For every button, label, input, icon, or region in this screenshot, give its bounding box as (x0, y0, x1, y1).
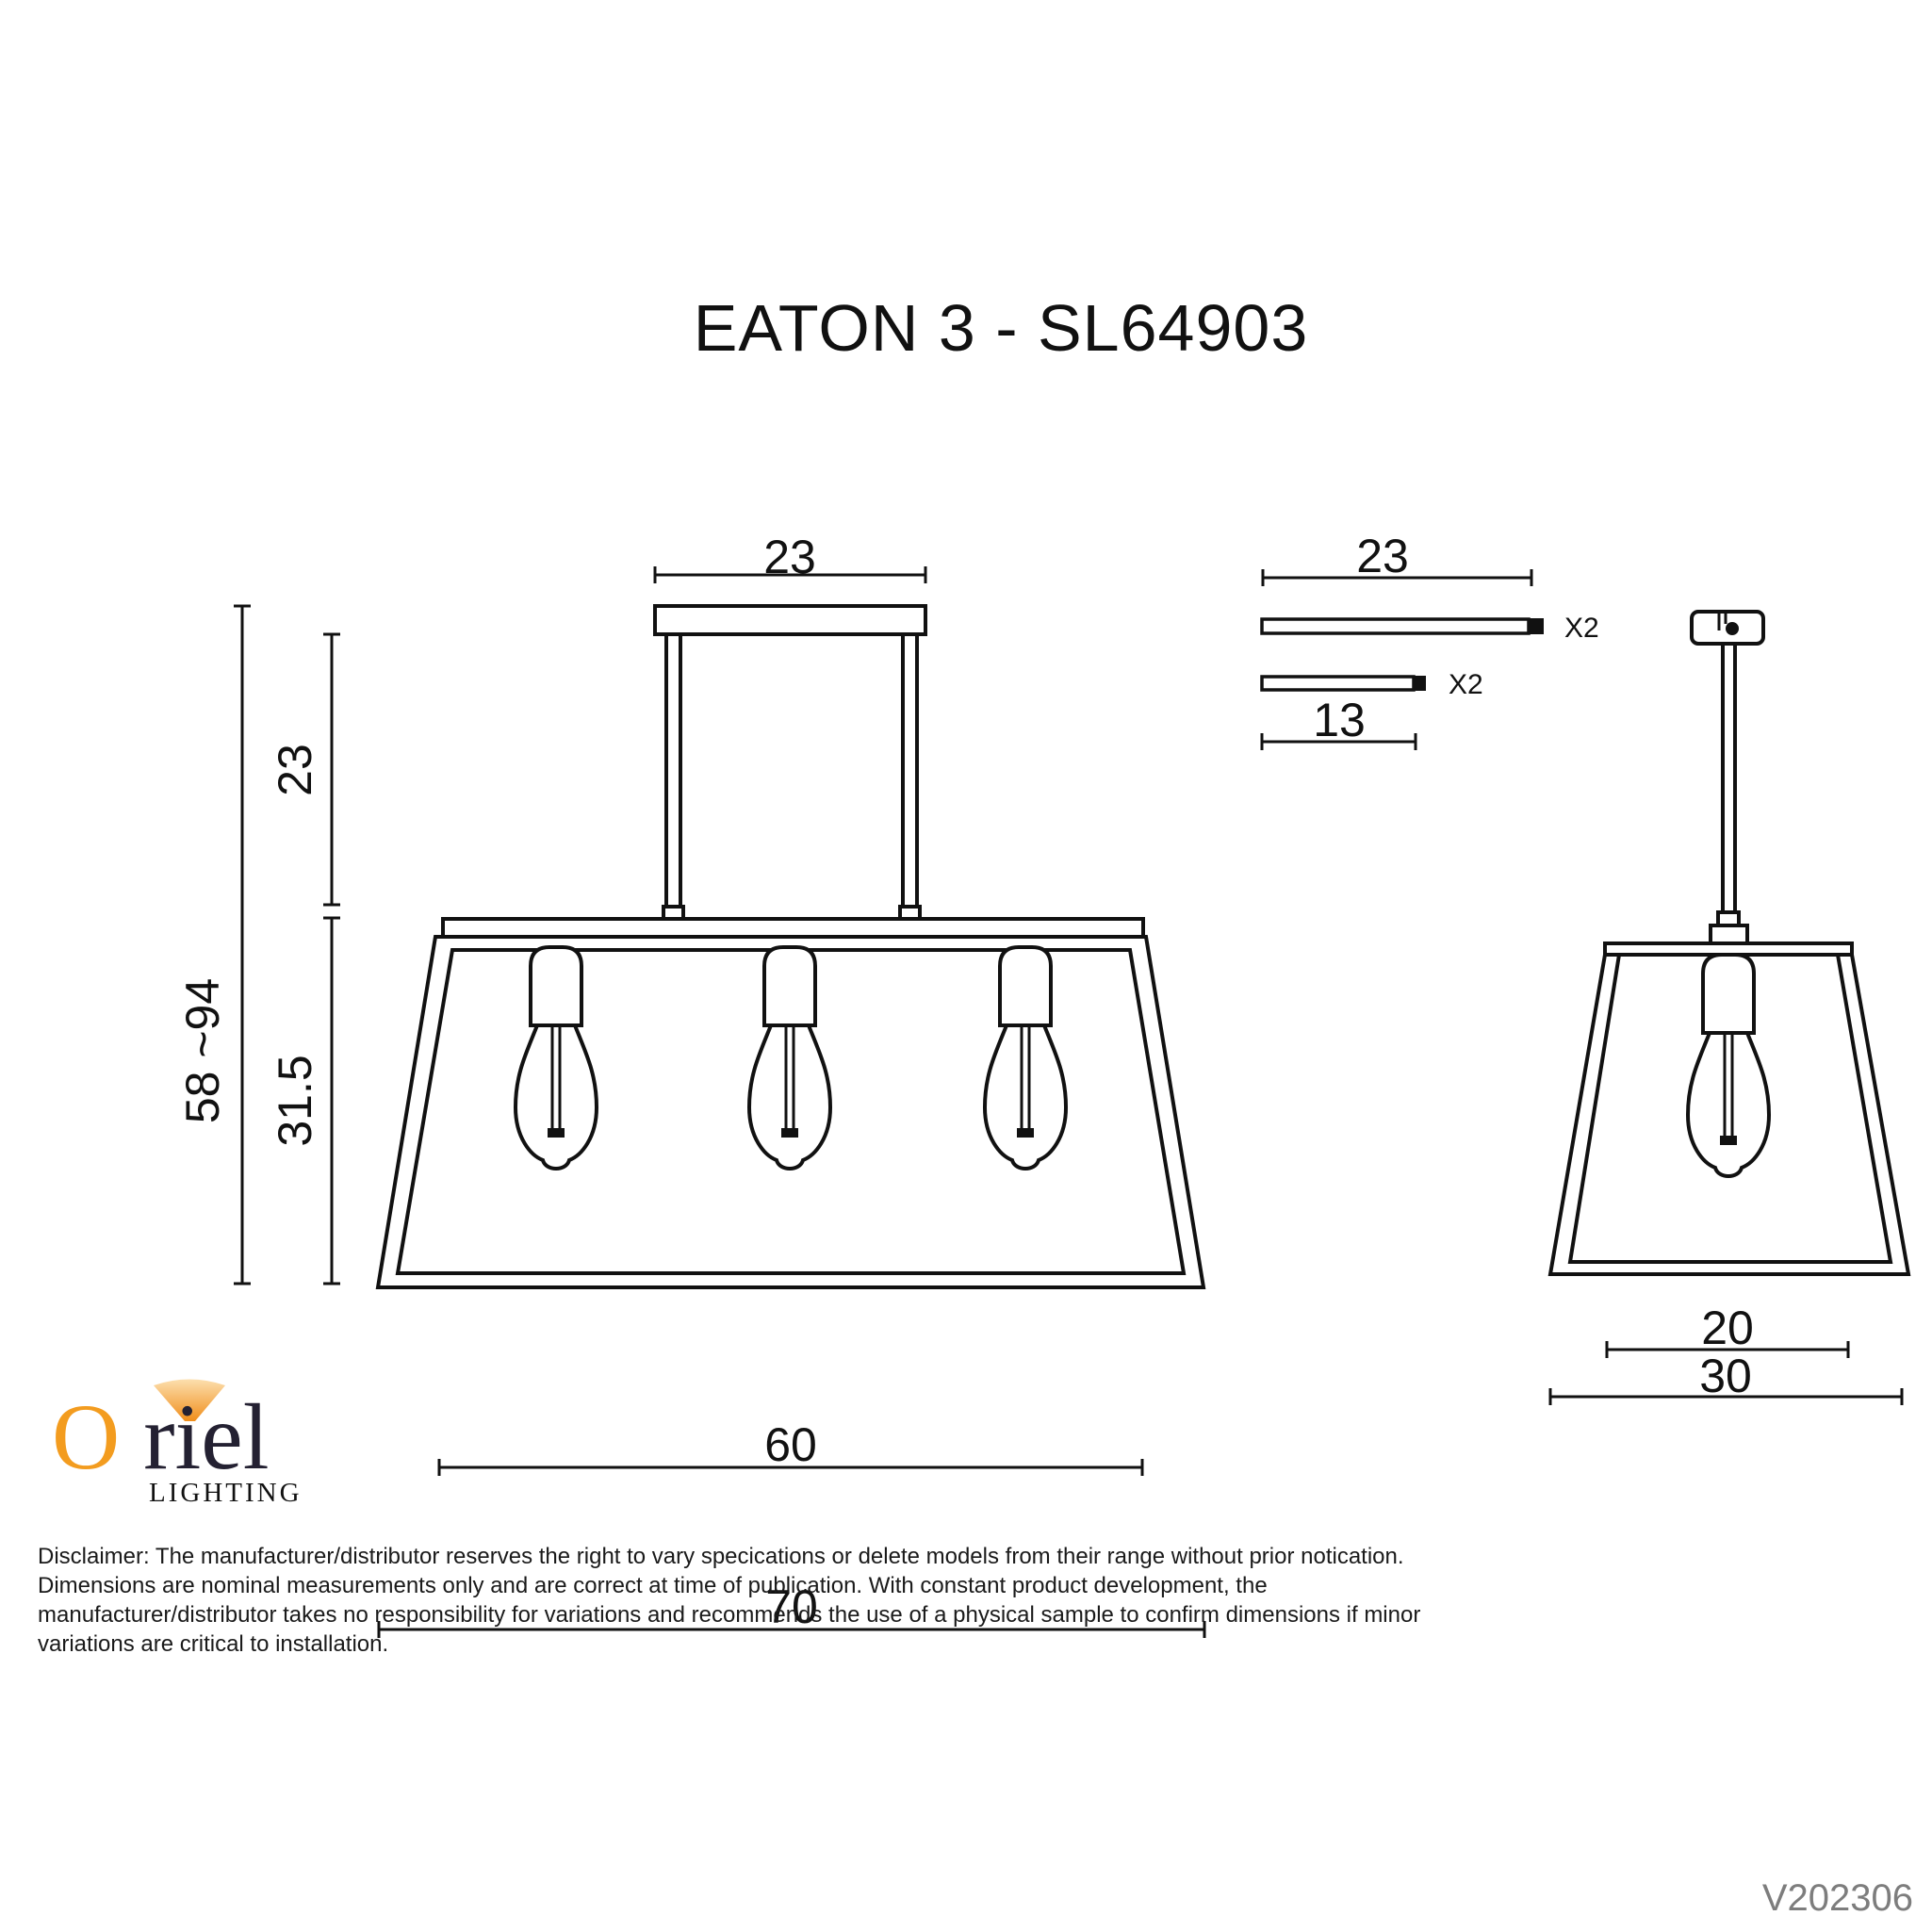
front-rod-right (903, 634, 917, 907)
spec-sheet-page: { "title": "EATON 3 - SL64903", "front_v… (0, 0, 1932, 1932)
dim-shade-top-depth: 20 (1701, 1302, 1754, 1354)
side-canopy-pivot (1726, 622, 1739, 635)
dim-long-rod-length: 23 (1356, 530, 1409, 582)
front-canopy (655, 606, 925, 634)
dim-rod-length: 23 (269, 744, 321, 796)
oriel-logo: O riel LIGHTING (52, 1380, 303, 1509)
side-socket-coupler (1711, 925, 1747, 943)
front-rod-left (666, 634, 680, 907)
disclaimer-line: variations are critical to installation. (38, 1629, 1513, 1659)
logo-brand-initial: O (52, 1384, 120, 1489)
dim-canopy-width: 23 (763, 531, 816, 583)
dim-shade-height: 31.5 (269, 1055, 321, 1146)
disclaimer-line: manufacturer/distributor takes no respon… (38, 1600, 1513, 1629)
logo-brand-rest: riel (143, 1384, 269, 1489)
dim-shade-bottom-depth: 30 (1699, 1350, 1752, 1402)
dim-overall-height: 58 ~94 (176, 978, 229, 1123)
logo-tagline: LIGHTING (149, 1478, 303, 1508)
short-rod-qty: X2 (1449, 669, 1483, 700)
long-rod-part (1262, 619, 1529, 633)
short-rod-part (1262, 677, 1414, 690)
dim-short-rod-length: 13 (1313, 694, 1366, 746)
long-rod-qty: X2 (1564, 613, 1599, 644)
disclaimer-line: Dimensions are nominal measurements only… (38, 1571, 1513, 1600)
side-rod (1723, 644, 1735, 912)
disclaimer-text: Disclaimer: The manufacturer/distributor… (38, 1542, 1513, 1659)
short-rod-end-cap (1414, 676, 1426, 691)
logo-brand-text: O riel (52, 1384, 269, 1489)
version-code: V202306 (1762, 1877, 1913, 1920)
disclaimer-line: Disclaimer: The manufacturer/distributor… (38, 1542, 1513, 1571)
side-rod-collar (1718, 912, 1739, 925)
dim-shade-top-width: 60 (764, 1418, 817, 1471)
parts-diagram: 23 X2 X2 13 (1262, 530, 1599, 750)
long-rod-end-cap (1529, 618, 1544, 634)
front-shade-top-bar (443, 919, 1143, 937)
